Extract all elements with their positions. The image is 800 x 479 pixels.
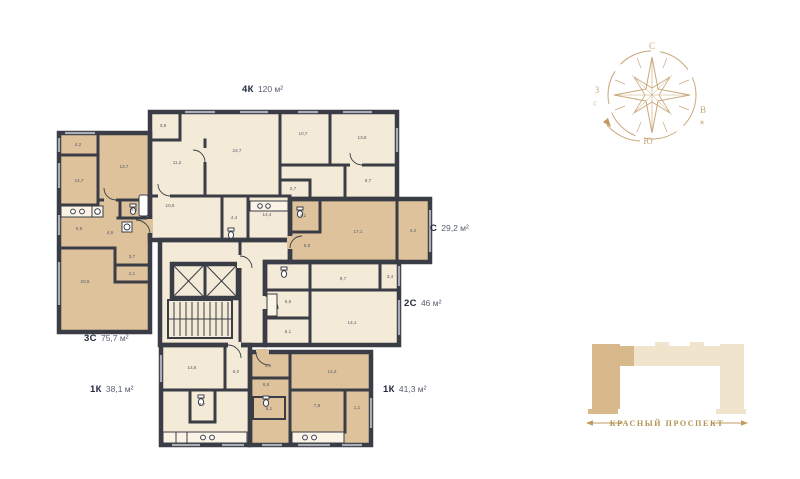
room-area-label: 14,3 (328, 369, 337, 374)
room-area-label: 4,1 (300, 213, 307, 218)
street-indicator: КРАСНЫЙ ПРОСПЕКТ (586, 419, 748, 428)
compass-east-label: В (700, 105, 706, 115)
bathtub (139, 195, 148, 216)
toilet (228, 228, 234, 238)
room-area-label: 4,3 (131, 207, 138, 212)
kitchen-counter (292, 432, 344, 443)
room-area-label: 14,1 (348, 320, 357, 325)
plan-canvas: 3,811,224,710,713,89,72,710,64,414,44,21… (0, 0, 800, 479)
room-area-label: 6,1 (266, 406, 273, 411)
site-plan: КРАСНЫЙ ПРОСПЕКТ (586, 342, 748, 428)
floor-plan-page: 3,811,224,710,713,89,72,710,64,414,44,21… (0, 0, 800, 479)
room-area-label: 1,1 (354, 405, 361, 410)
room-area-label: 14,6 (188, 365, 197, 370)
compass-sweep-arrow (607, 125, 640, 141)
room-area-label: 17,1 (354, 229, 363, 234)
room-area-label: 11,2 (173, 160, 182, 165)
building-footprint (588, 342, 746, 414)
room-area-label: 5,9 (76, 226, 83, 231)
compass-west-label: З (595, 85, 600, 95)
room-area-label: 9,7 (365, 178, 372, 183)
room-area-label: 10,7 (299, 131, 308, 136)
room-area-label: 2,7 (290, 186, 297, 191)
apartment-label-c: С29,2 м² (430, 223, 469, 234)
kitchen-counter (250, 201, 288, 211)
room-area-label: 9,7 (340, 276, 347, 281)
room-area-label: 20,6 (81, 279, 90, 284)
apartment-label-1k-left: 1К38,1 м² (90, 384, 134, 395)
room-area-label: 14,4 (263, 212, 272, 217)
room-area-label: 3,4 (387, 274, 394, 279)
room-area-label: 5,6 (304, 243, 311, 248)
toilet (281, 267, 287, 277)
room-area-label: 4,6 (107, 230, 114, 235)
apartment-label-4k: 4К120 м² (242, 84, 283, 95)
room-area-label: 3,7 (199, 402, 206, 407)
kitchen-counter (163, 432, 247, 443)
room-area-label: 14,7 (75, 178, 84, 183)
toilet (263, 396, 269, 406)
room-area-label: 2,1 (129, 271, 136, 276)
zone-1k-left (161, 345, 250, 445)
room-area-label: 10,6 (166, 203, 175, 208)
room-area-label: 3,7 (129, 254, 136, 259)
room-area-label: 4,2 (75, 142, 82, 147)
zone-3c (59, 133, 150, 332)
sun-icon: ☀ (699, 119, 705, 127)
room-area-label: 13,7 (120, 164, 129, 169)
compass-star (614, 57, 690, 133)
room-area-label: 13,8 (358, 135, 367, 140)
room-area-label: 24,7 (233, 148, 242, 153)
current-section-highlight (592, 344, 620, 409)
room-area-label: 5,1 (285, 329, 292, 334)
compass-north-label: С (649, 41, 655, 51)
apartment-label-3c: 3С75,7 м² (84, 333, 129, 344)
room-area-label: 3,8 (265, 363, 272, 368)
room-area-label: 4,4 (231, 215, 238, 220)
kitchen-counter (267, 294, 277, 316)
compass-rose: С В Ю З ☾ ☀ (593, 41, 706, 146)
kitchen-counter (61, 206, 103, 217)
apartment-label-1k-right: 1К41,3 м² (383, 384, 427, 395)
room-area-label: 7,8 (314, 403, 321, 408)
compass-south-label: Ю (643, 136, 652, 146)
floor-plan: 3,811,224,710,713,89,72,710,64,414,44,21… (59, 84, 469, 445)
room-area-label: 6,0 (233, 369, 240, 374)
room-area-label: 5,6 (285, 299, 292, 304)
street-name-label: КРАСНЫЙ ПРОСПЕКТ (610, 419, 725, 428)
room-area-label: 4,2 (410, 228, 417, 233)
room-area-label: 3,8 (160, 123, 167, 128)
apartment-label-2c: 2С46 м² (404, 298, 442, 309)
room-area-label: 6,8 (263, 382, 270, 387)
moon-icon: ☾ (593, 100, 599, 108)
